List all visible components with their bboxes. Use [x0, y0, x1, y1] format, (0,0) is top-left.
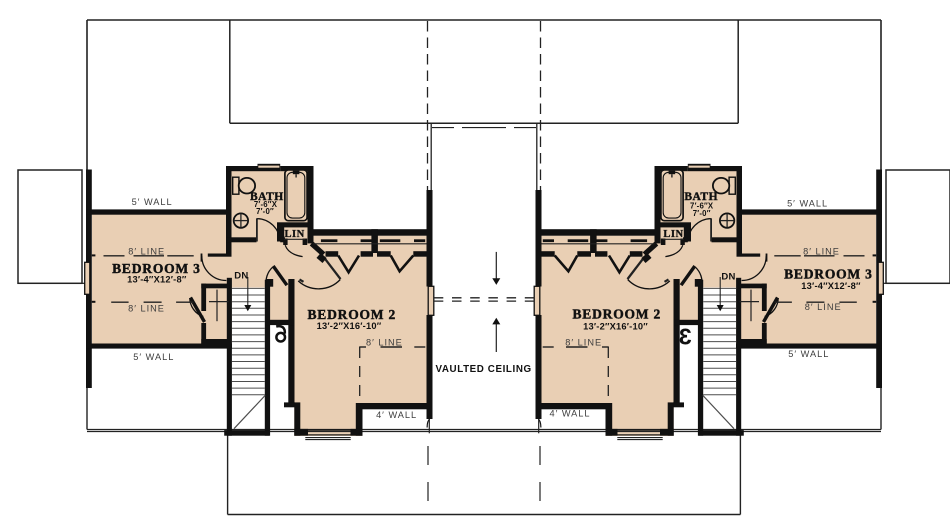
svg-text:7′-0″: 7′-0″	[693, 209, 711, 218]
svg-text:8′ LINE: 8′ LINE	[128, 246, 165, 256]
svg-text:BEDROOM 2: BEDROOM 2	[573, 306, 662, 321]
svg-text:4′ WALL: 4′ WALL	[549, 409, 590, 419]
svg-text:8′ LINE: 8′ LINE	[805, 302, 842, 312]
svg-text:4′ WALL: 4′ WALL	[376, 410, 417, 420]
svg-text:8′ LINE: 8′ LINE	[803, 246, 840, 256]
svg-text:LIN: LIN	[663, 229, 683, 240]
svg-text:8′ LINE: 8′ LINE	[565, 337, 602, 347]
svg-text:BEDROOM 3: BEDROOM 3	[112, 261, 201, 276]
svg-text:3: 3	[679, 324, 692, 350]
svg-text:DN: DN	[234, 271, 248, 282]
svg-text:8′ LINE: 8′ LINE	[366, 338, 403, 348]
svg-text:13′-4″X12′-8″: 13′-4″X12′-8″	[127, 275, 187, 285]
svg-text:5′ WALL: 5′ WALL	[787, 198, 828, 208]
svg-text:BEDROOM 3: BEDROOM 3	[784, 267, 873, 282]
svg-text:5′ WALL: 5′ WALL	[788, 349, 829, 359]
svg-text:DN: DN	[721, 272, 735, 283]
svg-text:13′-2″X16′-10″: 13′-2″X16′-10″	[583, 322, 648, 332]
svg-text:5′ WALL: 5′ WALL	[132, 197, 173, 207]
svg-text:VAULTED CEILING: VAULTED CEILING	[435, 364, 531, 375]
svg-text:BEDROOM 2: BEDROOM 2	[308, 307, 397, 322]
svg-text:7′-0″: 7′-0″	[256, 207, 274, 216]
svg-text:5′ WALL: 5′ WALL	[133, 352, 174, 362]
svg-text:13′-4″X12′-8″: 13′-4″X12′-8″	[801, 281, 861, 291]
svg-text:13′-2″X16′-10″: 13′-2″X16′-10″	[317, 321, 382, 331]
svg-text:LIN: LIN	[285, 229, 305, 240]
svg-text:8′ LINE: 8′ LINE	[128, 303, 165, 313]
